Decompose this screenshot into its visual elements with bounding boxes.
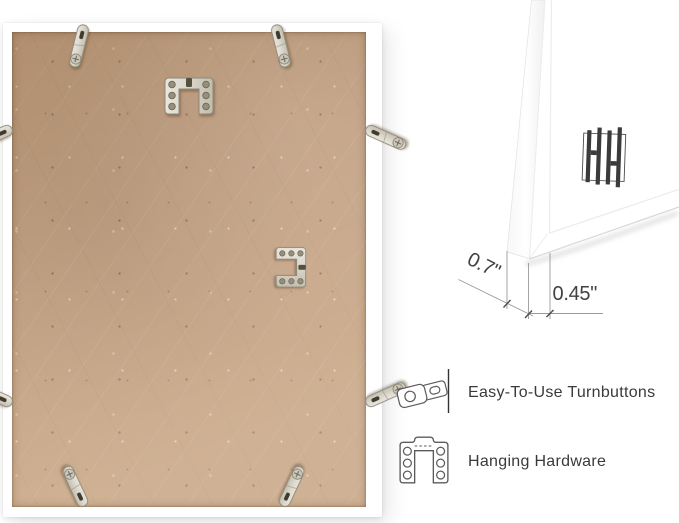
frame-shadow <box>526 213 678 264</box>
frame-back-photo <box>3 23 382 517</box>
depth-measurement-label: 0.7" <box>464 248 504 283</box>
frame-bottom-edge <box>530 207 679 259</box>
frame-front-edge <box>530 0 546 259</box>
turnbutton-icon <box>396 366 454 416</box>
dimension-ticks <box>504 300 554 318</box>
frame-face <box>530 0 679 259</box>
miter-line <box>530 234 548 259</box>
mdf-backboard <box>12 32 366 507</box>
feature-label-hanging-hardware: Hanging Hardware <box>468 453 606 471</box>
frame-side-profile <box>507 0 545 259</box>
feature-label-turnbuttons: Easy-To-Use Turnbuttons <box>468 384 655 402</box>
face-width-measurement-label: 0.45" <box>553 283 598 305</box>
dimension-lines <box>459 251 604 319</box>
frame-corner-render: 0.7" 0.45" <box>440 0 679 335</box>
hanging-hardware-icon <box>397 436 451 484</box>
mat-edge-line <box>550 0 679 233</box>
brand-hh-logo <box>582 126 626 187</box>
product-infographic: 0.7" 0.45" Easy-To-Use Turnbuttons Hangi… <box>0 0 679 523</box>
